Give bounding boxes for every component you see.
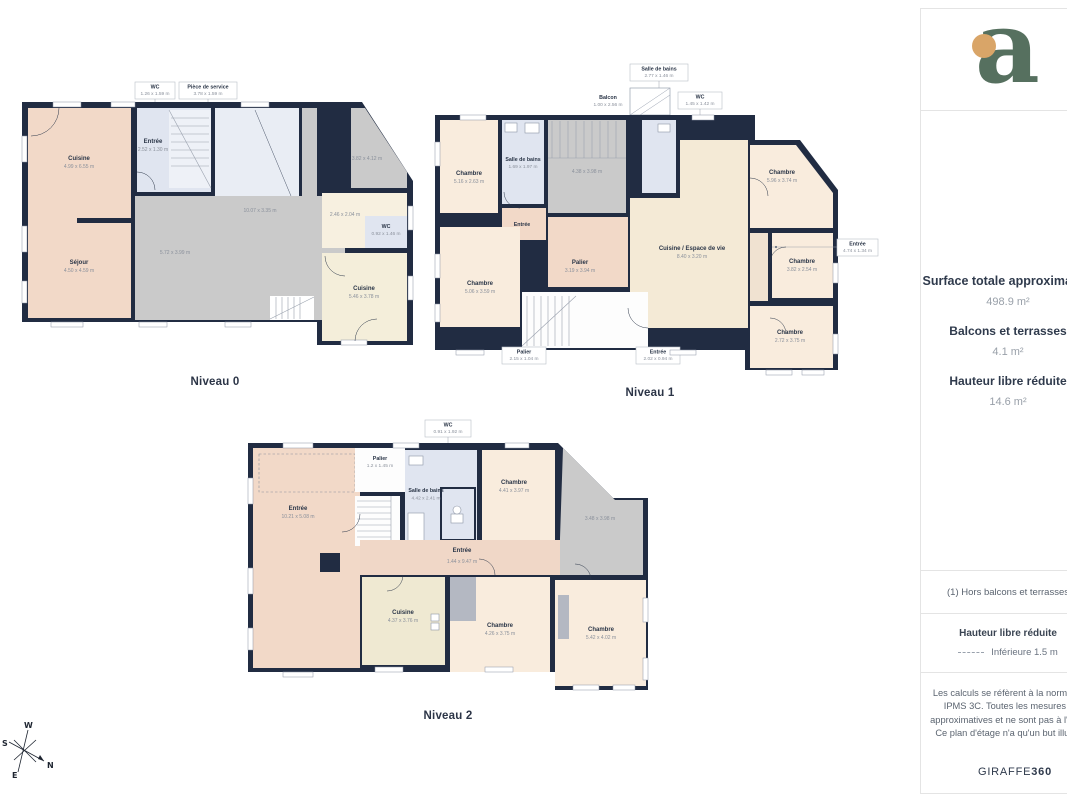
room-label: Entrée (144, 139, 163, 145)
room-label: Cuisine (392, 610, 414, 616)
callout-label: Entrée (650, 350, 667, 356)
room-label: Entrée (514, 222, 531, 228)
room-cuisine-sejour (28, 108, 131, 318)
room-label: Chambre (769, 170, 796, 176)
compass-w: W (24, 721, 33, 730)
bath-fixture (505, 123, 517, 132)
callout-dims: 3.78 x 1.59 m (193, 91, 222, 97)
room-dims: 3.48 x 3.98 m (585, 516, 615, 522)
compass-arrow (38, 755, 44, 761)
callout-label: Salle de bains (641, 67, 676, 73)
room-dims: 3.19 x 3.94 m (565, 268, 595, 274)
stove (431, 614, 439, 621)
room-chambre-1 (440, 120, 498, 213)
surface-total-value: 498.9 m² (921, 296, 1067, 308)
dashed-line-sample (958, 652, 984, 653)
room-label: Chambre (777, 330, 804, 336)
reduced-height-title: Hauteur libre réduite (921, 374, 1067, 388)
room-dims: 4.42 x 2.41 m (411, 496, 440, 502)
level-caption-1: Niveau 1 (600, 387, 700, 399)
room-dims: 4.38 x 3.98 m (572, 169, 602, 175)
corridor (750, 233, 768, 301)
legend-item-text: Inférieure 1.5 m (991, 647, 1058, 658)
room-dims: 5.06 x 3.59 m (465, 289, 495, 295)
bath-fixture (525, 123, 539, 133)
sink (409, 456, 423, 465)
callout-dims: 4.74 x 1.34 m (843, 248, 872, 254)
room-palier (355, 448, 405, 492)
sidebar-disclaimer-box: Les calculs se réfèrent à la norme RICS … (920, 672, 1067, 794)
room-wc (441, 488, 475, 540)
room-dims: 4.41 x 3.97 m (499, 488, 529, 494)
room-chambre-5 (750, 306, 833, 368)
callout-label: Palier (517, 350, 531, 356)
stairs (169, 110, 211, 188)
room-label: Palier (572, 260, 589, 266)
room-dims: 0.92 x 1.46 m (371, 231, 400, 237)
room-label: Chambre (789, 259, 816, 265)
room-label: Chambre (501, 480, 528, 486)
callout-label: WC (444, 423, 453, 429)
callout-dims: 1.45 x 1.42 m (685, 101, 714, 107)
legend-title: Hauteur libre réduite (921, 628, 1067, 639)
wall-stub (77, 218, 131, 223)
stairs (522, 292, 648, 348)
brand-logo: a (955, 8, 1047, 108)
room-label: Chambre (487, 623, 514, 629)
callout-label: Pièce de service (187, 85, 228, 91)
room-dims: 2.46 x 2.04 m (330, 212, 360, 218)
callout-label: WC (696, 95, 705, 101)
room-dims: 3.82 x 2.54 m (787, 267, 817, 273)
room-dims: 5.16 x 2.63 m (454, 179, 484, 185)
disclaimer-text: Les calculs se réfèrent à la norme RICS … (921, 687, 1067, 741)
brand-name: GIRAFFE (978, 766, 1031, 778)
callout-salle-de-bains: Salle de bains 2.77 x 1.46 m (630, 64, 688, 88)
callout-label: Entrée (849, 242, 866, 248)
room-terrace-gray (560, 448, 643, 575)
reduced-height-value: 14.6 m² (921, 396, 1067, 408)
room-label: Cuisine / Espace de vie (659, 246, 726, 252)
callout-dims: 2.02 x 0.94 m (643, 356, 672, 362)
room-label: Cuisine (68, 156, 90, 162)
callout-dims: 2.15 x 1.04 m (509, 356, 538, 362)
room-dims: 4.99 x 6.55 m (64, 164, 94, 170)
room-label: Palier (373, 456, 387, 462)
room-label: Entrée (289, 506, 308, 512)
room-chambre-1 (482, 450, 555, 553)
room-wing-gray (351, 108, 407, 188)
compass-rose: W S N E (2, 716, 60, 780)
room-dims: 5.96 x 3.74 m (767, 178, 797, 184)
balcony: Balcon 1.00 x 2.56 m (593, 88, 670, 115)
callout-dims: 1.00 x 2.56 m (593, 102, 622, 108)
room-dims: 4.37 x 3.76 m (388, 618, 418, 624)
room-label: Séjour (70, 260, 89, 266)
sidebar-footnote: (1) Hors balcons et terrasses (920, 570, 1067, 614)
legend-row: Inférieure 1.5 m (921, 647, 1067, 658)
callout-wc: WC 1.45 x 1.42 m (678, 92, 722, 118)
room-dims: 3.82 x 4.12 m (352, 156, 382, 162)
room-dims: 10.21 x 5.08 m (281, 514, 314, 520)
room-label: Chambre (467, 281, 494, 287)
footnote-text: (1) Hors balcons et terrasses (947, 587, 1067, 598)
room-dims: 10.07 x 3.35 m (243, 208, 276, 214)
room-dims: 1.2 x 1.45 m (367, 463, 393, 469)
sidebar-measurements: Surface totale approximative 498.9 m² Ba… (920, 110, 1067, 571)
room-label: Entrée (453, 548, 472, 554)
logo-dot-icon (972, 34, 996, 58)
compass-lines (9, 730, 44, 772)
compass-n: N (47, 761, 54, 770)
room-dims: 5.42 x 4.02 m (586, 635, 616, 641)
balcony-title: Balcons et terrasses (921, 324, 1067, 338)
callout-entree-2: Entrée 2.02 x 0.94 m (636, 347, 680, 364)
closet (450, 577, 476, 621)
callout-dims: 0.91 x 1.92 m (433, 429, 462, 435)
room-label: WC (382, 224, 391, 230)
room-dims: 2.52 x 1.30 m (138, 147, 168, 153)
room-dims: 5.46 x 3.78 m (349, 294, 379, 300)
compass-s: S (2, 739, 8, 748)
stairs (270, 296, 314, 320)
compass-e: E (12, 771, 17, 780)
floorplan-niveau-1: Salle de bains 2.77 x 1.46 m Balcon 1.00… (430, 58, 880, 408)
room-dims: 4.50 x 4.59 m (64, 268, 94, 274)
room-dims: 1.69 x 1.97 m (508, 164, 537, 170)
level-caption-0: Niveau 0 (165, 376, 265, 388)
room-label: Salle de bains (505, 157, 540, 163)
brand-suffix: 360 (1031, 766, 1052, 778)
closet (558, 595, 569, 639)
balcony-value: 4.1 m² (921, 346, 1067, 358)
stairs (548, 120, 626, 213)
room-dims: 1.44 x 9.47 m (447, 559, 477, 565)
room-palier (548, 217, 628, 287)
level-caption-2: Niveau 2 (398, 710, 498, 722)
sidebar-legend: Hauteur libre réduite Inférieure 1.5 m (920, 613, 1067, 673)
room-dims: 8.40 x 3.20 m (677, 254, 707, 260)
room-chambre-3 (750, 145, 833, 228)
surface-total-title: Surface totale approximative (921, 274, 1067, 288)
callout-dims: 2.77 x 1.46 m (644, 73, 673, 79)
callout-dims: 1.26 x 1.59 m (140, 91, 169, 97)
room-label: Salle de bains (408, 488, 443, 494)
room-dims: 4.26 x 3.75 m (485, 631, 515, 637)
stove (431, 623, 439, 630)
stairs (355, 496, 400, 546)
solid-block (320, 553, 340, 572)
room-entree-corridor (360, 540, 560, 575)
room-dims: 2.72 x 3.75 m (775, 338, 805, 344)
room-chambre-4 (772, 233, 833, 298)
room-entree (253, 448, 360, 668)
room-dims: 5.72 x 3.99 m (160, 250, 190, 256)
callout-label: WC (151, 85, 160, 91)
room-label: Chambre (588, 627, 615, 633)
callout-label: Balcon (599, 95, 617, 101)
room-label: Cuisine (353, 286, 375, 292)
bath-fixture (658, 124, 670, 132)
room-chambre-2 (440, 227, 520, 327)
floorplan-niveau-0: WC 1.26 x 1.59 m Pièce de service 3.78 x… (15, 76, 415, 376)
room-label: Chambre (456, 171, 483, 177)
callout-palier: Palier 2.15 x 1.04 m (502, 347, 546, 364)
brand-wordmark: GIRAFFE360 (921, 766, 1067, 778)
floorplan-niveau-2: WC 0.91 x 1.92 m (243, 418, 653, 713)
